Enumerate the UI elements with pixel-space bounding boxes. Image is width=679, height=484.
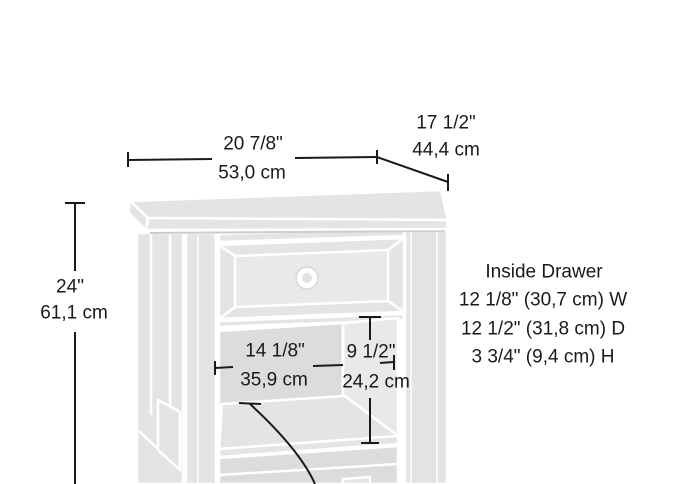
shelf-height-metric-label: 24,2 cm — [342, 373, 410, 392]
inside-drawer-depth: 12 1/2" (31,8 cm) D — [461, 320, 625, 339]
shelf-height-imperial-label: 9 1/2" — [346, 343, 395, 362]
shelf-width-imperial-label: 14 1/8" — [245, 342, 305, 361]
height-metric-label: 61,1 cm — [40, 304, 108, 323]
depth-dimension-line — [377, 157, 448, 191]
height-imperial-label: 24" — [56, 278, 84, 297]
drawer-knob-icon — [296, 267, 318, 289]
width-metric-label: 53,0 cm — [218, 164, 286, 183]
front-left-stile — [186, 233, 216, 484]
front-right-stile — [405, 227, 447, 484]
shelf-width-metric-label: 35,9 cm — [240, 371, 308, 390]
depth-imperial-label: 17 1/2" — [416, 114, 476, 133]
product-dimension-diagram: 20 7/8" 53,0 cm 17 1/2" 44,4 cm 24" 61,1… — [0, 0, 679, 484]
inside-drawer-height: 3 3/4" (9,4 cm) H — [472, 348, 615, 367]
inside-drawer-width: 12 1/8" (30,7 cm) W — [459, 291, 627, 310]
table-top — [128, 190, 448, 233]
width-imperial-label: 20 7/8" — [223, 135, 283, 154]
depth-metric-label: 44,4 cm — [412, 141, 480, 160]
height-dimension-line — [65, 203, 85, 484]
drawer-front — [219, 238, 404, 319]
left-side-panel — [137, 233, 183, 484]
nightstand-drawing — [128, 190, 448, 484]
furniture-illustration — [0, 0, 679, 484]
inside-drawer-title: Inside Drawer — [485, 263, 602, 282]
base-foot — [343, 477, 370, 484]
